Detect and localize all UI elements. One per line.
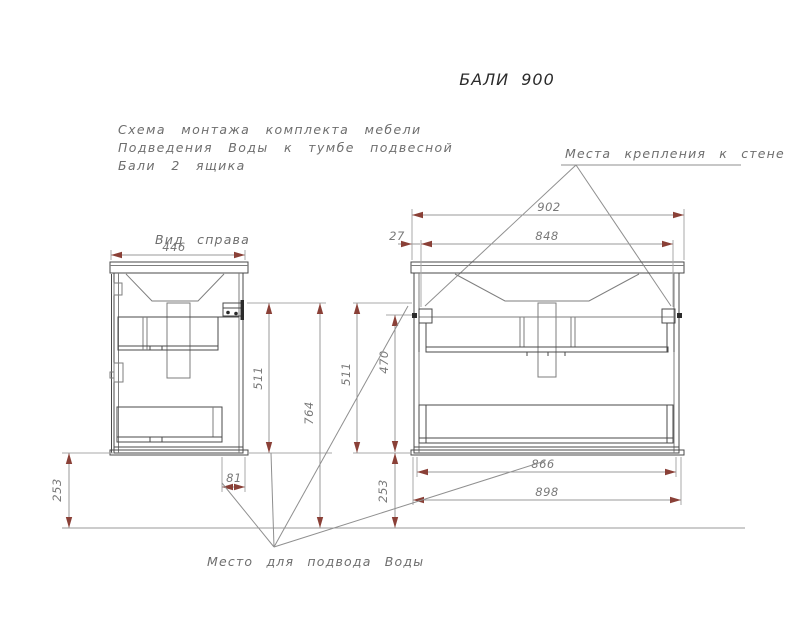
front-lower-drawer — [419, 405, 673, 443]
dim-side-height: 511 — [247, 303, 332, 453]
page-title: БАЛИ 900 — [459, 70, 555, 89]
side-drain-pipe — [167, 303, 190, 378]
description-line-1: Схема монтажа комплекта мебели — [118, 122, 422, 137]
side-upper-drawer — [118, 317, 239, 350]
dim-848-value: 848 — [535, 229, 558, 243]
dim-total-height: 764 — [302, 303, 320, 528]
front-sink-basin — [455, 274, 639, 301]
dim-253-right-value: 253 — [376, 479, 390, 502]
water-leader-2 — [271, 453, 274, 547]
front-bottom-panel — [411, 447, 684, 455]
dim-inner-height: 470 — [377, 315, 412, 452]
dim-511-front-value: 511 — [339, 362, 353, 385]
dim-764-value: 764 — [302, 401, 316, 424]
dim-511-side-value: 511 — [251, 366, 265, 389]
front-drain-pipe — [538, 303, 556, 377]
side-cabinet-body — [114, 273, 243, 453]
dim-bracket-offset: 27 — [389, 229, 420, 244]
dim-front-height: 511 — [339, 303, 412, 453]
front-wall-bracket-left — [412, 309, 432, 323]
front-rail — [426, 347, 668, 356]
dim-253-left-value: 253 — [50, 478, 64, 501]
dim-clearance-left: 253 — [50, 453, 113, 528]
side-countertop — [110, 262, 248, 273]
dim-bracket-span: 848 — [421, 229, 673, 307]
wall-mount-leader-right — [576, 165, 671, 306]
water-supply-label: Место для подвода Воды — [207, 554, 424, 569]
description-block: Схема монтажа комплекта мебели Подведени… — [118, 122, 453, 173]
dim-446-value: 446 — [162, 240, 185, 254]
dim-81-value: 81 — [226, 471, 242, 485]
technical-drawing: БАЛИ 900 Схема монтажа комплекта мебели … — [0, 0, 800, 631]
side-bottom-panel — [110, 447, 248, 455]
dim-27-value: 27 — [389, 229, 405, 243]
drawing-page: БАЛИ 900 Схема монтажа комплекта мебели … — [0, 0, 800, 631]
dim-902-value: 902 — [537, 200, 560, 214]
description-line-3: Бали 2 ящика — [118, 158, 246, 173]
front-cabinet-body — [414, 273, 679, 453]
wall-mount-label: Места крепления к стене — [565, 146, 785, 161]
front-view — [411, 262, 684, 455]
description-line-2: Подведения Воды к тумбе подвесной — [118, 140, 453, 155]
water-leader-1 — [222, 483, 274, 547]
dim-inner-width: 866 — [417, 457, 676, 477]
side-sink-basin — [126, 274, 224, 301]
side-lower-drawer — [117, 407, 222, 442]
dim-clearance-right: 253 — [376, 453, 395, 528]
side-view — [110, 262, 248, 455]
dim-898-value: 898 — [535, 485, 558, 499]
wall-mount-callout: Места крепления к стене — [425, 146, 785, 306]
dim-470-value: 470 — [377, 350, 391, 373]
